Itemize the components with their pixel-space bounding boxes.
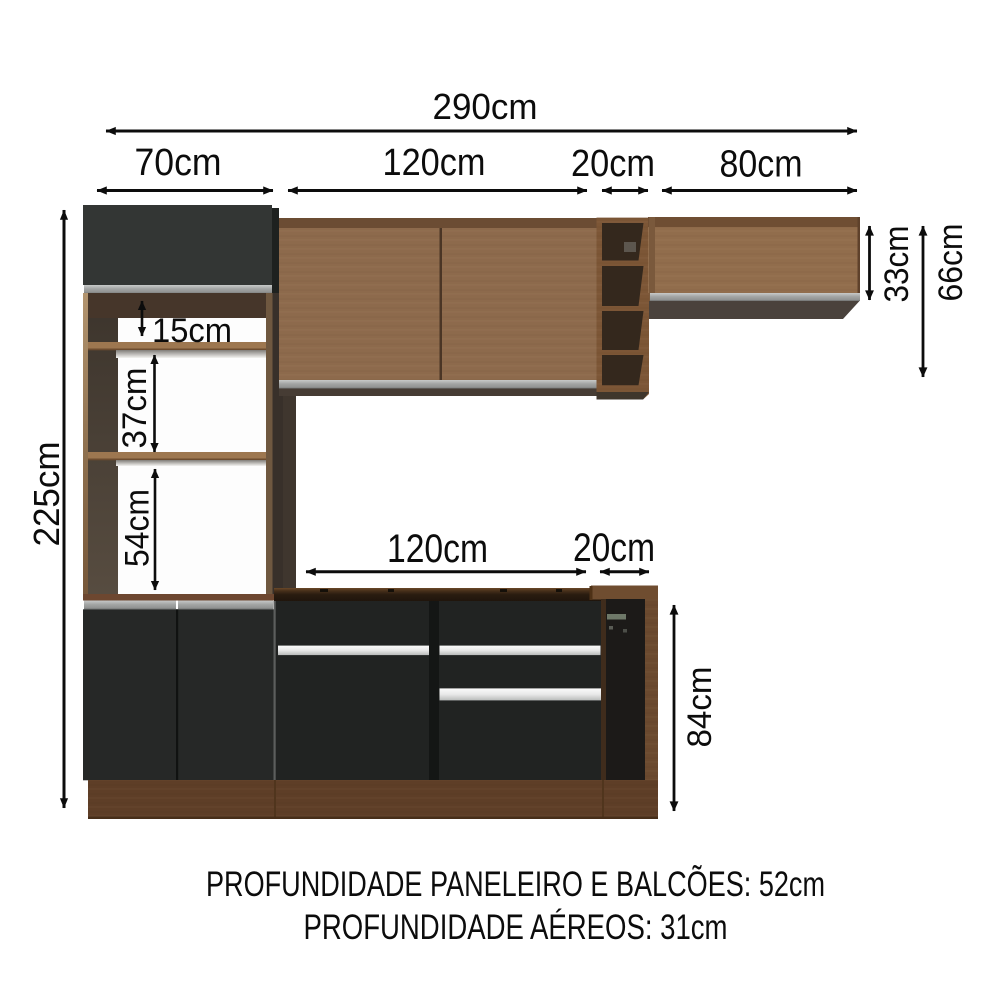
svg-text:20cm: 20cm [571, 143, 655, 185]
svg-text:37cm: 37cm [116, 368, 154, 449]
svg-text:84cm: 84cm [681, 667, 719, 748]
svg-text:33cm: 33cm [878, 226, 916, 303]
svg-text:290cm: 290cm [433, 86, 538, 127]
svg-text:PROFUNDIDADE AÉREOS: 31cm: PROFUNDIDADE AÉREOS: 31cm [304, 908, 728, 947]
svg-text:15cm: 15cm [152, 312, 232, 350]
svg-text:20cm: 20cm [573, 526, 655, 570]
svg-text:PROFUNDIDADE PANELEIRO E BALCÕ: PROFUNDIDADE PANELEIRO E BALCÕES: 52cm [206, 864, 825, 904]
svg-text:54cm: 54cm [119, 489, 157, 567]
svg-text:66cm: 66cm [932, 224, 970, 302]
svg-text:120cm: 120cm [383, 142, 486, 184]
svg-text:70cm: 70cm [135, 142, 222, 184]
svg-text:120cm: 120cm [387, 527, 488, 571]
svg-text:80cm: 80cm [720, 144, 803, 186]
svg-text:225cm: 225cm [26, 442, 67, 547]
